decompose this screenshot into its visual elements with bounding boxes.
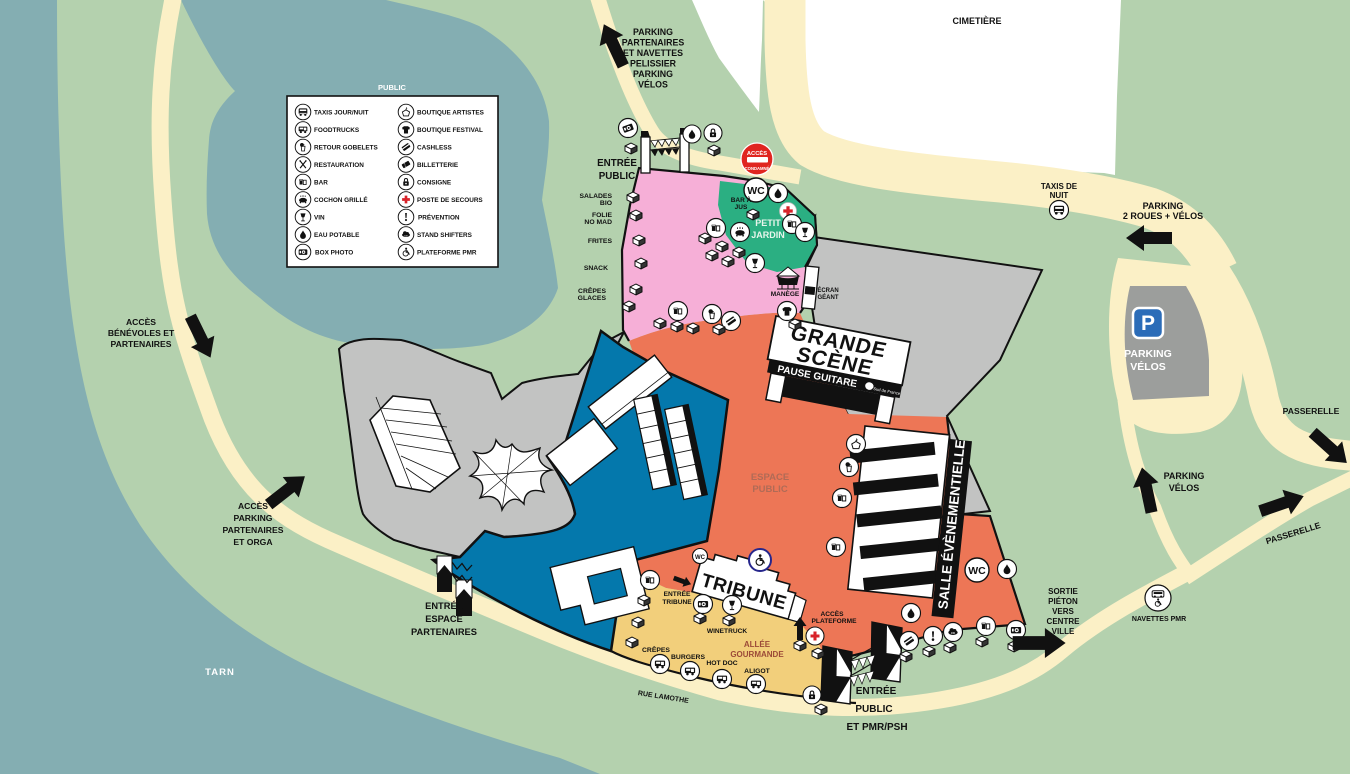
svg-text:BAR À: BAR À — [731, 195, 752, 204]
svg-text:ET NAVETTES: ET NAVETTES — [623, 48, 683, 58]
svg-text:NO MAD: NO MAD — [584, 219, 612, 226]
svg-text:PLATEFORME PMR: PLATEFORME PMR — [417, 250, 477, 257]
svg-text:ET ORGA: ET ORGA — [233, 537, 272, 547]
svg-text:WC: WC — [968, 565, 986, 577]
svg-text:SORTIE: SORTIE — [1048, 587, 1078, 596]
svg-text:ACCÈS: ACCÈS — [820, 609, 844, 618]
svg-text:CIMETIÈRE: CIMETIÈRE — [952, 16, 1001, 26]
svg-text:ENTRÉE: ENTRÉE — [664, 589, 691, 598]
svg-text:JARDIN: JARDIN — [751, 230, 785, 240]
svg-text:PARTENAIRES: PARTENAIRES — [411, 627, 477, 637]
svg-text:TARN: TARN — [205, 667, 235, 678]
svg-text:TRIBUNE: TRIBUNE — [662, 599, 692, 606]
svg-text:PUBLIC: PUBLIC — [599, 171, 635, 182]
svg-text:BAR: BAR — [314, 180, 328, 187]
svg-text:PARKING: PARKING — [633, 27, 673, 37]
svg-text:ET PMR/PSH: ET PMR/PSH — [846, 722, 907, 733]
svg-text:RESTAURATION: RESTAURATION — [314, 162, 364, 169]
svg-text:PARKING: PARKING — [1124, 348, 1172, 360]
svg-text:CRÊPES: CRÊPES — [578, 286, 606, 295]
svg-text:JUS: JUS — [735, 204, 748, 211]
svg-text:BILLETTERIE: BILLETTERIE — [417, 162, 459, 169]
svg-text:PIÉTON: PIÉTON — [1048, 597, 1078, 606]
svg-text:VIN: VIN — [314, 215, 325, 222]
svg-text:ENTRÉE: ENTRÉE — [597, 157, 637, 169]
svg-text:FOLIE: FOLIE — [592, 212, 612, 219]
svg-text:VILLE: VILLE — [1052, 627, 1075, 636]
svg-text:NUIT: NUIT — [1050, 191, 1069, 200]
svg-text:TAXIS JOUR/NUIT: TAXIS JOUR/NUIT — [314, 110, 369, 117]
svg-text:PELISSIER: PELISSIER — [630, 59, 677, 69]
svg-text:ACCÈS: ACCÈS — [126, 317, 156, 327]
svg-text:PARKING: PARKING — [234, 513, 273, 523]
svg-text:ACCÈS: ACCÈS — [238, 501, 268, 511]
svg-text:MANÈGE: MANÈGE — [771, 289, 800, 298]
svg-text:P: P — [1141, 312, 1155, 335]
svg-text:PARTENAIRES: PARTENAIRES — [622, 38, 685, 48]
svg-text:PUBLIC: PUBLIC — [378, 83, 407, 92]
svg-text:WINETRUCK: WINETRUCK — [707, 628, 748, 635]
svg-text:VERS: VERS — [1052, 607, 1074, 616]
svg-text:GÉANT: GÉANT — [818, 293, 839, 301]
svg-text:EAU POTABLE: EAU POTABLE — [314, 232, 360, 239]
svg-text:WC: WC — [695, 555, 706, 561]
svg-text:PETIT: PETIT — [755, 218, 781, 228]
svg-text:BIO: BIO — [600, 200, 612, 207]
svg-text:ACCÈS: ACCÈS — [747, 149, 767, 157]
svg-text:NAVETTES PMR: NAVETTES PMR — [1132, 616, 1186, 623]
svg-text:ENTRÉE: ENTRÉE — [856, 684, 897, 697]
svg-text:VÉLOS: VÉLOS — [1169, 483, 1200, 493]
svg-text:RETOUR GOBELETS: RETOUR GOBELETS — [314, 145, 379, 152]
svg-text:FOODTRUCKS: FOODTRUCKS — [314, 127, 360, 134]
svg-text:ESPACE: ESPACE — [751, 472, 789, 483]
svg-text:GLACES: GLACES — [578, 295, 607, 302]
svg-text:HOT DOC: HOT DOC — [706, 660, 737, 667]
svg-text:VÉLOS: VÉLOS — [1130, 360, 1166, 373]
svg-text:PASSERELLE: PASSERELLE — [1283, 406, 1340, 416]
svg-text:ALIGOT: ALIGOT — [744, 668, 771, 675]
svg-text:PRÉVENTION: PRÉVENTION — [418, 213, 460, 222]
svg-text:2 ROUES + VÉLOS: 2 ROUES + VÉLOS — [1123, 211, 1203, 221]
svg-text:PARTENAIRES: PARTENAIRES — [223, 525, 284, 535]
svg-text:WC: WC — [747, 185, 765, 197]
svg-text:BOUTIQUE FESTIVAL: BOUTIQUE FESTIVAL — [417, 127, 483, 134]
svg-text:PARKING: PARKING — [1143, 201, 1184, 211]
svg-text:FRITES: FRITES — [588, 238, 613, 245]
svg-text:PARKING: PARKING — [1164, 471, 1205, 481]
svg-text:BURGERS: BURGERS — [671, 654, 705, 661]
svg-text:CONSIGNE: CONSIGNE — [417, 180, 452, 187]
svg-text:SNACK: SNACK — [584, 265, 608, 272]
svg-text:VÉLOS: VÉLOS — [638, 80, 668, 90]
svg-text:ENTRÉE: ENTRÉE — [425, 601, 463, 611]
svg-text:PUBLIC: PUBLIC — [752, 484, 788, 495]
svg-text:BOUTIQUE ARTISTES: BOUTIQUE ARTISTES — [417, 110, 485, 117]
svg-text:TAXIS DE: TAXIS DE — [1041, 182, 1078, 191]
svg-text:PARTENAIRES: PARTENAIRES — [111, 339, 172, 349]
svg-text:CONDAMNÉ: CONDAMNÉ — [745, 166, 770, 171]
svg-text:ESPACE: ESPACE — [425, 614, 463, 624]
svg-text:CRÊPES: CRÊPES — [642, 645, 670, 654]
svg-text:PARKING: PARKING — [633, 69, 673, 79]
svg-text:CENTRE: CENTRE — [1047, 617, 1081, 626]
svg-text:POSTE DE SECOURS: POSTE DE SECOURS — [417, 197, 483, 204]
svg-text:CASHLESS: CASHLESS — [417, 145, 453, 152]
svg-text:PUBLIC: PUBLIC — [855, 704, 892, 715]
svg-text:PLATEFORME: PLATEFORME — [812, 618, 858, 625]
svg-text:STAND SHIFTERS: STAND SHIFTERS — [417, 232, 473, 239]
svg-text:ÉCRAN: ÉCRAN — [817, 286, 838, 294]
svg-text:ALLÉE: ALLÉE — [744, 640, 771, 649]
svg-text:BÉNÉVOLES ET: BÉNÉVOLES ET — [108, 328, 175, 338]
svg-text:BOX PHOTO: BOX PHOTO — [315, 250, 353, 257]
svg-text:SALADES: SALADES — [580, 193, 613, 200]
svg-text:COCHON GRILLÉ: COCHON GRILLÉ — [314, 195, 368, 204]
svg-text:GOURMANDE: GOURMANDE — [730, 650, 784, 659]
